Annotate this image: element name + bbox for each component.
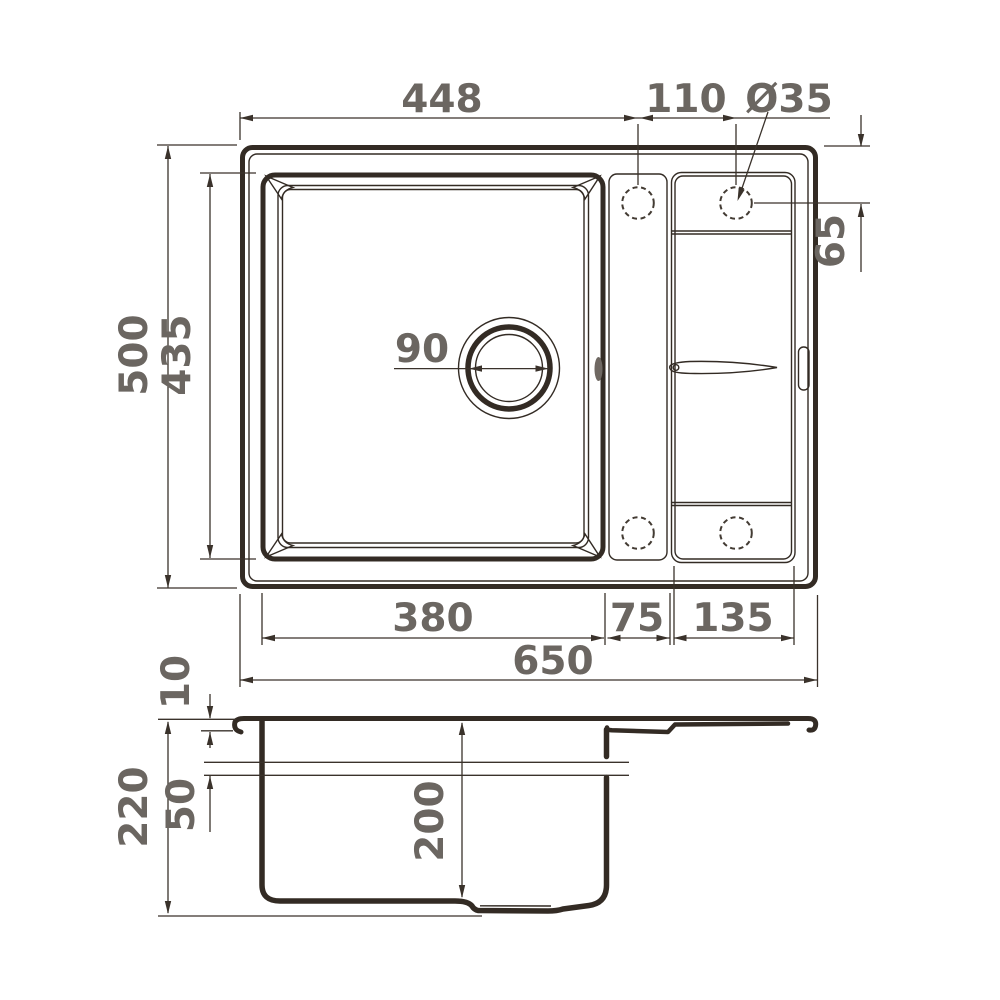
sink-inner-rim-line [249, 154, 808, 581]
dimension-labels: 448 110 Ø35 65 500 435 90 380 75 135 650… [112, 77, 854, 862]
dim-435-label: 435 [155, 314, 200, 395]
sink-outer-edge [243, 148, 816, 587]
sink-technical-drawing: 448 110 Ø35 65 500 435 90 380 75 135 650… [0, 0, 1000, 1000]
dim-448-label: 448 [401, 77, 482, 122]
dim-380-label: 380 [392, 596, 473, 641]
dim-75-label: 75 [610, 596, 664, 641]
side-view [204, 719, 816, 912]
dim-50-label: 50 [159, 778, 204, 832]
dim-135-label: 135 [692, 596, 773, 641]
dim-650-label: 650 [512, 639, 593, 684]
dim-65-label: 65 [809, 214, 854, 268]
dim-200-label: 200 [408, 780, 453, 861]
tap-holes [622, 187, 752, 549]
tap-strip [609, 174, 667, 560]
dim-500-label: 500 [112, 314, 157, 395]
dim-10-label: 10 [154, 655, 199, 709]
dim-110-label: 110 [645, 77, 726, 122]
dim-tap-diameter-label: Ø35 [745, 77, 832, 122]
side-drainboard-line [607, 724, 788, 733]
overflow-hole [595, 357, 603, 381]
drainboard-groove [670, 361, 777, 373]
top-view [243, 148, 816, 587]
drainboard-groove-notch [673, 365, 679, 371]
technical-drawing-page: 448 110 Ø35 65 500 435 90 380 75 135 650… [0, 0, 1000, 1000]
side-level-lines [204, 762, 629, 775]
dim-90-label: 90 [395, 327, 449, 372]
dim-220-label: 220 [112, 766, 157, 847]
